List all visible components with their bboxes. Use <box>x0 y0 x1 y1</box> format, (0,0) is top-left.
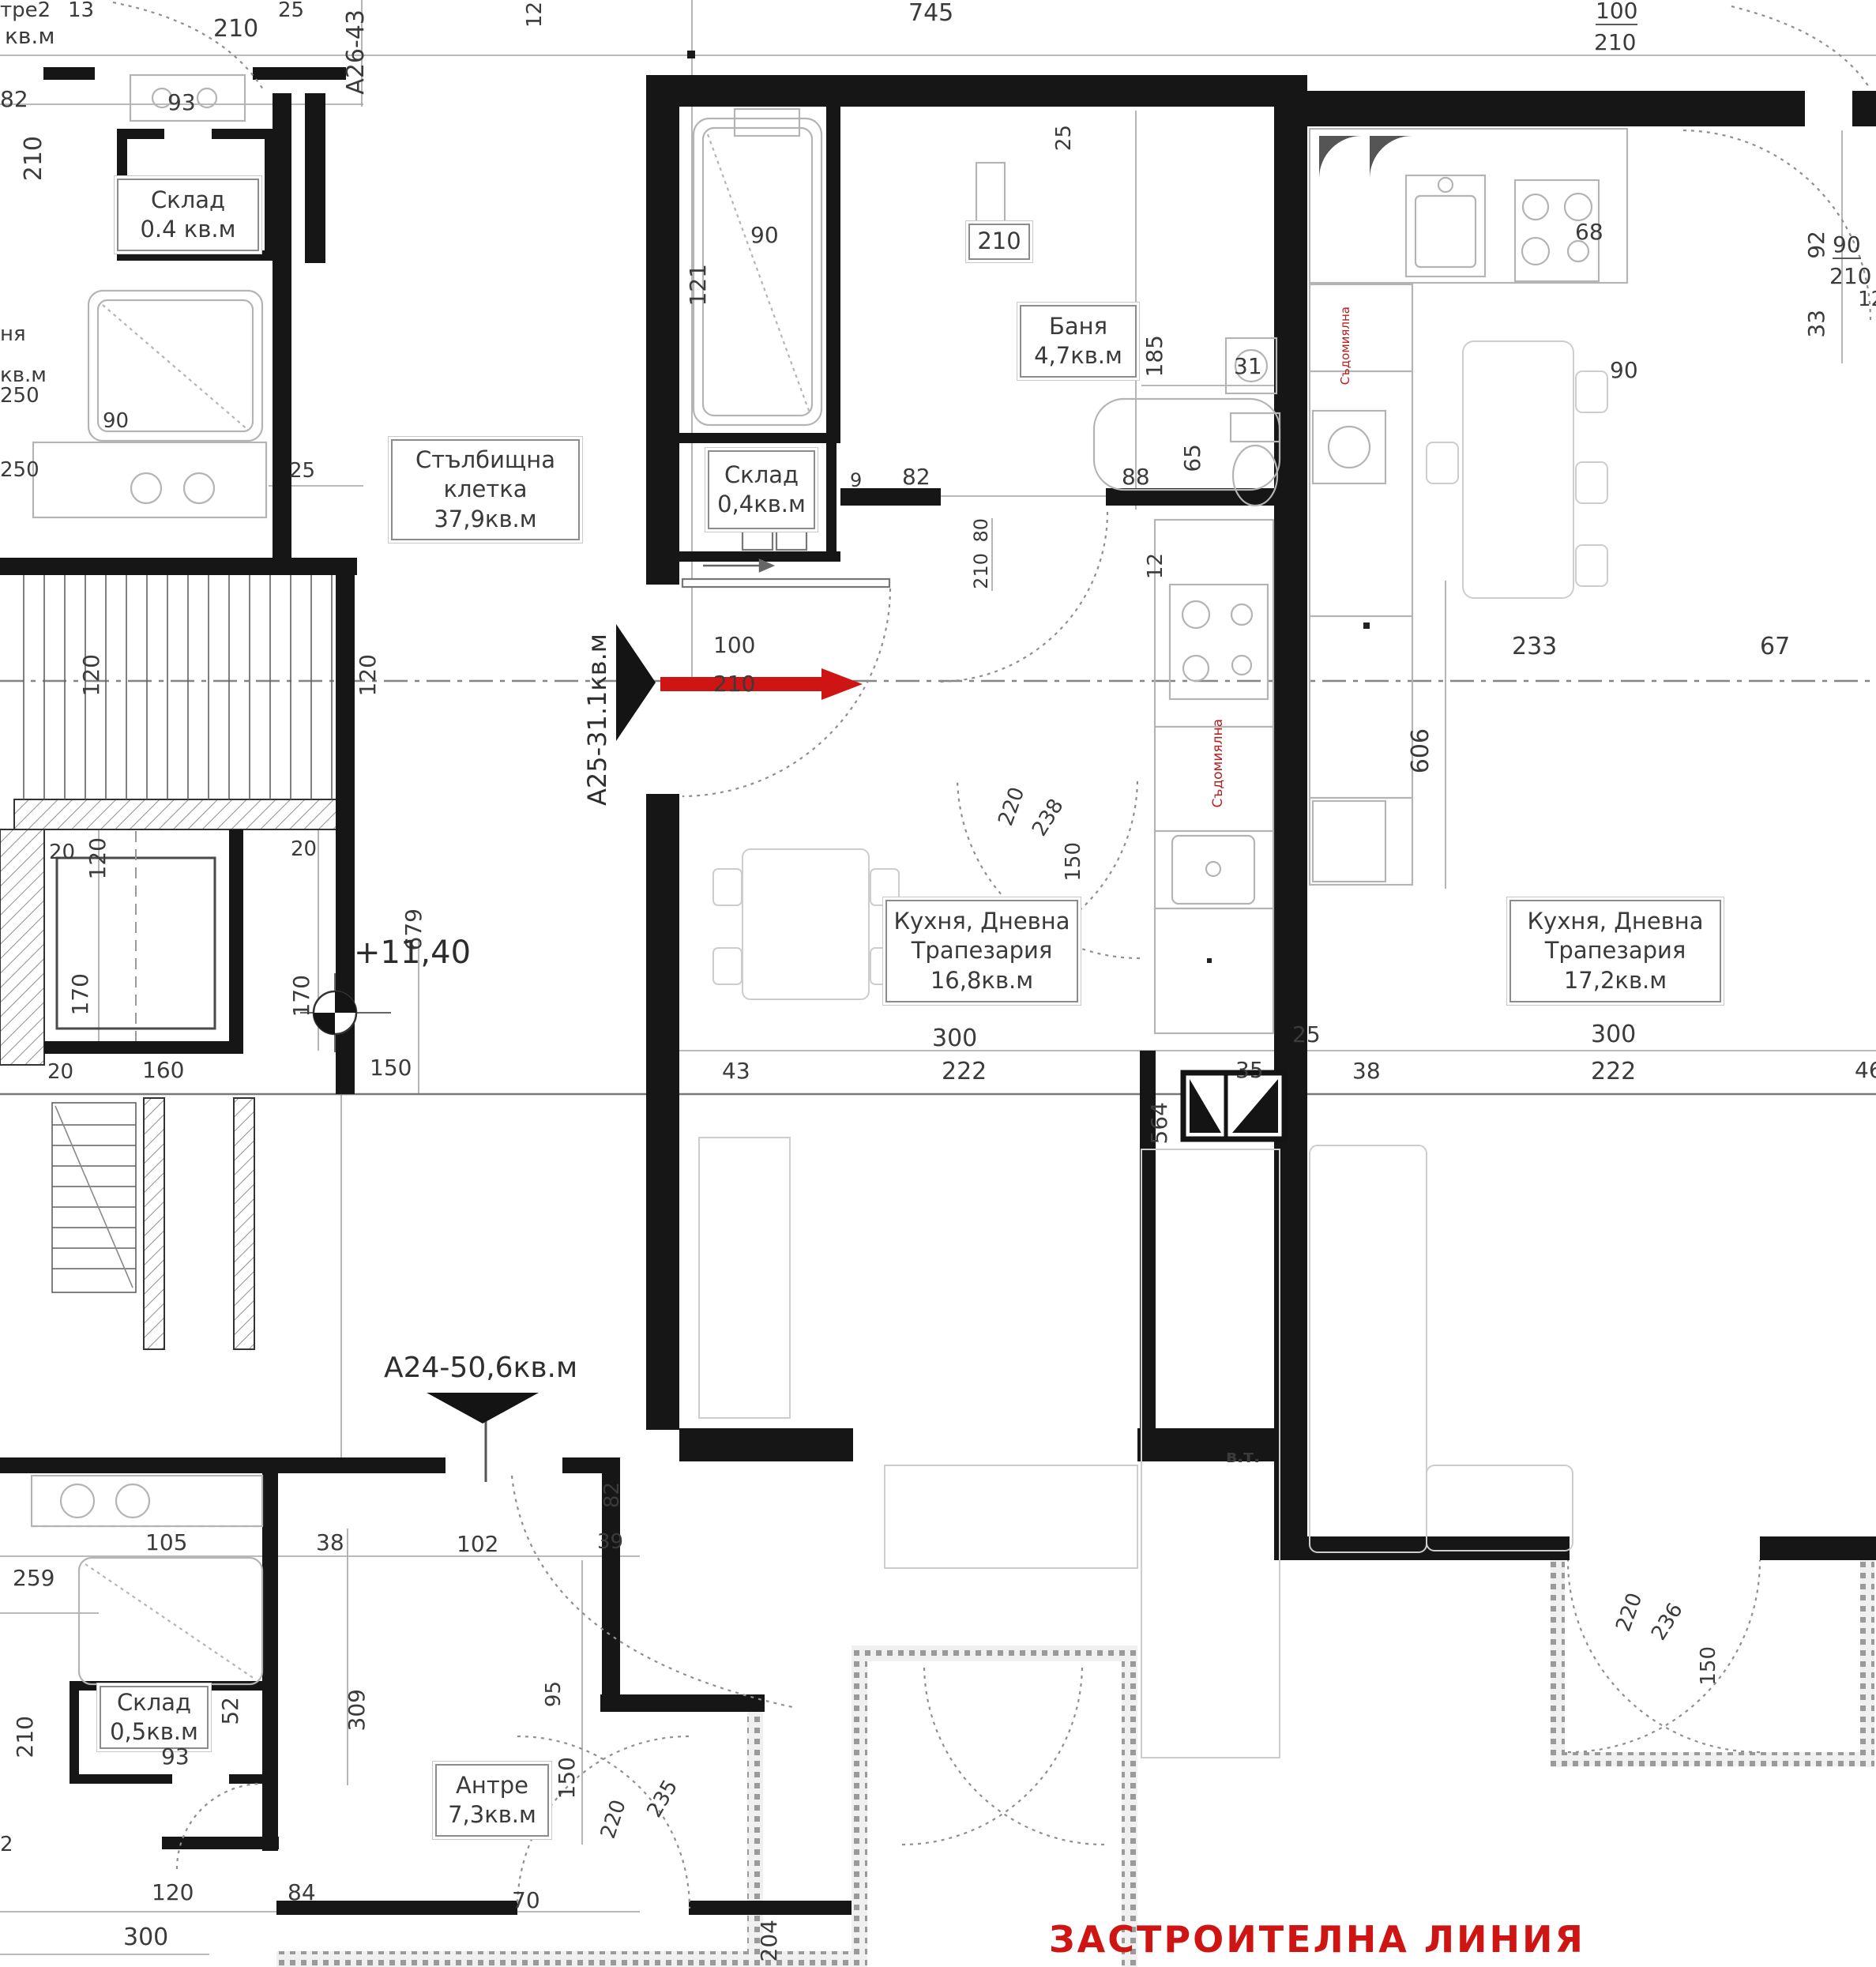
dimension-label: ня <box>0 324 26 344</box>
dimension-label: тре2 <box>0 0 51 21</box>
dimension-label: 92 <box>1806 231 1828 259</box>
dimension-label: 564 <box>1149 1102 1171 1144</box>
dimension-label: 68 <box>1575 221 1603 243</box>
dimension-label: 204 <box>758 1920 780 1961</box>
dimension-label: 2 <box>0 1834 13 1855</box>
dimension-label: 120 <box>152 1882 194 1904</box>
dimension-label: 259 <box>13 1567 55 1589</box>
dimension-label: 150 <box>1698 1646 1719 1686</box>
dimension-label: 90 <box>750 224 779 246</box>
dimension-label: 220 <box>598 1797 630 1841</box>
dimension-label: 88 <box>1122 466 1150 488</box>
dimension-label: 210 <box>1829 265 1871 288</box>
dimension-label: 82 <box>902 466 930 488</box>
dimension-label: 222 <box>942 1060 987 1084</box>
dimension-label: 25 <box>289 461 315 481</box>
dimension-label: 35 <box>1235 1059 1264 1081</box>
dimension-label: 250 <box>0 460 39 480</box>
dimension-label: 150 <box>556 1757 578 1799</box>
dimension-label: 13 <box>68 0 94 21</box>
dimension-label: 300 <box>123 1926 168 1950</box>
dimension-label: 210 <box>972 553 991 589</box>
dimension-label: 210 <box>213 17 258 41</box>
dimension-label: 52 <box>220 1697 242 1725</box>
dimension-label: 150 <box>1063 842 1084 882</box>
dimension-label: Съдомиялна <box>1340 307 1352 385</box>
dimension-label: 170 <box>291 975 313 1017</box>
dimension-label: 235 <box>644 1777 681 1821</box>
dimension-label: 236 <box>1649 1600 1686 1644</box>
dimension-label: кв.м <box>5 25 55 47</box>
apartment-label-a24: А24-50,6кв.м <box>384 1354 577 1382</box>
dimension-label: 160 <box>142 1059 184 1081</box>
dimension-label: кв.м <box>0 365 47 386</box>
dimension-label: 100 <box>1596 0 1637 25</box>
dimension-label: 95 <box>543 1681 564 1707</box>
dimension-label: 90 <box>1610 359 1638 382</box>
dimension-label: 67 <box>1760 635 1790 659</box>
dimension-label: 300 <box>932 1027 977 1051</box>
dimension-label: 65 <box>1182 444 1204 472</box>
dimension-label: 300 <box>1591 1023 1636 1047</box>
dimension-label: 20 <box>47 1062 73 1082</box>
dimension-label: 90 <box>1833 234 1861 259</box>
dimension-label: 220 <box>1613 1590 1645 1634</box>
dimension-label: 309 <box>346 1689 368 1731</box>
dimension-label: 185 <box>1144 335 1166 377</box>
dimension-label: 100 <box>713 634 755 656</box>
dimension-label: 121 <box>687 264 709 306</box>
dimension-label: 25 <box>1054 125 1074 151</box>
dimension-label: 170 <box>70 973 92 1015</box>
dimension-label: в.т. <box>1226 1449 1260 1466</box>
apartment-label-a25: А25-31.1кв.м <box>585 569 610 806</box>
dimension-label: 31 <box>1234 355 1262 378</box>
dimension-label: 93 <box>167 92 196 114</box>
dimension-label: 210 <box>1594 32 1636 54</box>
dimension-label: 606 <box>1409 728 1433 773</box>
dimension-label: 210 <box>22 136 46 181</box>
dimension-label: 120 <box>81 654 103 696</box>
dimension-label: 250 <box>0 386 39 406</box>
dimension-label: 120 <box>87 837 109 879</box>
building-line-label: ЗАСТРОИТЕЛНА ЛИНИЯ <box>1049 1921 1585 1958</box>
dimension-label: 233 <box>1512 635 1557 659</box>
dimension-label: 210 <box>713 673 755 695</box>
dimension-label: 120 <box>357 654 379 696</box>
dimension-label: 210 <box>14 1716 36 1758</box>
dimension-label: 105 <box>145 1532 187 1554</box>
dimension-label: 9 <box>850 471 862 490</box>
dimension-label: 82 <box>0 88 28 111</box>
dimension-label: 38 <box>1352 1060 1381 1082</box>
dimension-label: 43 <box>722 1060 750 1082</box>
dimension-label: 25 <box>1292 1024 1321 1046</box>
dimension-label: 222 <box>1591 1060 1636 1084</box>
dimension-labels-layer: тре21325745210100210А26-43кв.м8293210122… <box>0 0 1876 1967</box>
dimension-label: 238 <box>1029 795 1067 840</box>
dimension-label: А26-43 <box>344 9 368 95</box>
dimension-label: 82 <box>602 1482 622 1508</box>
level-mark: +11,40 <box>354 937 471 968</box>
dimension-label: 12 <box>1858 289 1876 310</box>
dimension-label: 12 <box>524 2 545 28</box>
dimension-label: 25 <box>278 0 304 21</box>
dimension-label: 70 <box>512 1890 540 1912</box>
dimension-label: 46 <box>1855 1059 1876 1081</box>
dimension-label: 20 <box>291 839 317 859</box>
dimension-label: 80 <box>972 518 991 543</box>
dimension-label: 150 <box>370 1057 412 1079</box>
dimension-label: 84 <box>288 1882 316 1904</box>
dimension-label: 102 <box>457 1533 498 1555</box>
dimension-label: Съдомиялна <box>1212 719 1225 808</box>
dimension-label: 38 <box>316 1532 344 1554</box>
dimension-label: 745 <box>908 2 953 25</box>
dimension-label: 93 <box>161 1746 190 1768</box>
dimension-label: 39 <box>597 1532 623 1552</box>
dimension-label: 220 <box>995 784 1028 829</box>
dimension-label: 33 <box>1806 310 1828 338</box>
dimension-label: 20 <box>49 842 75 863</box>
dimension-label: 12 <box>1145 553 1166 579</box>
dimension-label: 90 <box>103 411 129 431</box>
floor-plan: Склад0.4 кв.мСтълбищнаклетка37,9кв.мСкла… <box>0 0 1876 1967</box>
